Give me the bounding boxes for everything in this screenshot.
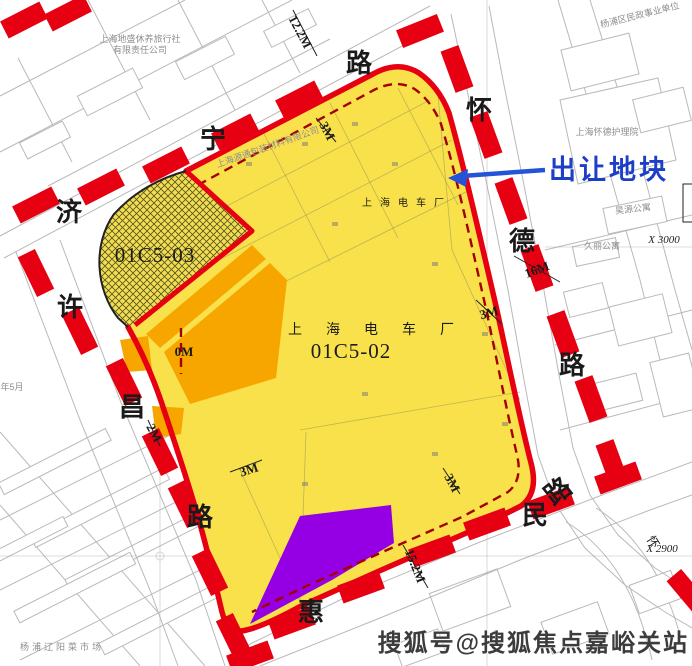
road-char-huaide-2: 德 [509,227,535,256]
parcel-id-01C5-03: 01C5-03 [115,243,196,267]
gridref-x3000: X 3000 [647,234,680,246]
road-char-huimin-2: 民 [522,501,548,530]
apartment2-label: 久丽公寓 [584,240,620,251]
factory-label-center: 上海电车厂 [288,321,478,338]
nursing-home-label: 上海怀德护理院 [575,126,638,137]
road-char-xuchang-2: 昌 [119,393,145,422]
gridref-x2900: X 2900 [645,543,678,555]
annotation-label: 出让地块 [549,155,669,185]
factory-label-top: 上海电车厂 [362,196,452,209]
road-char-huimin-1: 惠 [298,598,324,627]
map-canvas: 济 宁 路 怀 德 路 许 昌 路 惠 民 路 怀 12.2M 3M 3M 16… [0,0,692,666]
resort-label-line1: 上海地盛休养旅行社 [99,33,180,44]
road-char-jining-1: 济 [56,198,83,227]
road-char-huaide-3: 路 [559,350,586,380]
annotation-arrow-line [462,170,545,176]
road-char-huaide-1: 怀 [466,96,492,125]
watermark-text: 搜狐号@搜狐焦点嘉峪关站 [378,629,689,657]
land-parcel-map: 济 宁 路 怀 德 路 许 昌 路 惠 民 路 怀 12.2M 3M 3M 16… [0,0,692,666]
market-label: 杨浦辽阳菜市场 [20,641,104,652]
measure-left-setback: 0M [175,344,194,359]
road-char-xuchang-3: 路 [187,502,214,532]
road-char-xuchang-1: 许 [57,293,83,322]
parcel-id-01C5-02: 01C5-02 [311,339,392,363]
resort-label-line2: 有限责任公司 [113,44,167,55]
civil-affairs-label: 杨浦区民政事业单位 [599,0,680,30]
road-char-jining-2: 宁 [200,124,226,154]
date-note-label: 2018年5月 [0,381,24,392]
road-char-jining-3: 路 [346,48,373,78]
